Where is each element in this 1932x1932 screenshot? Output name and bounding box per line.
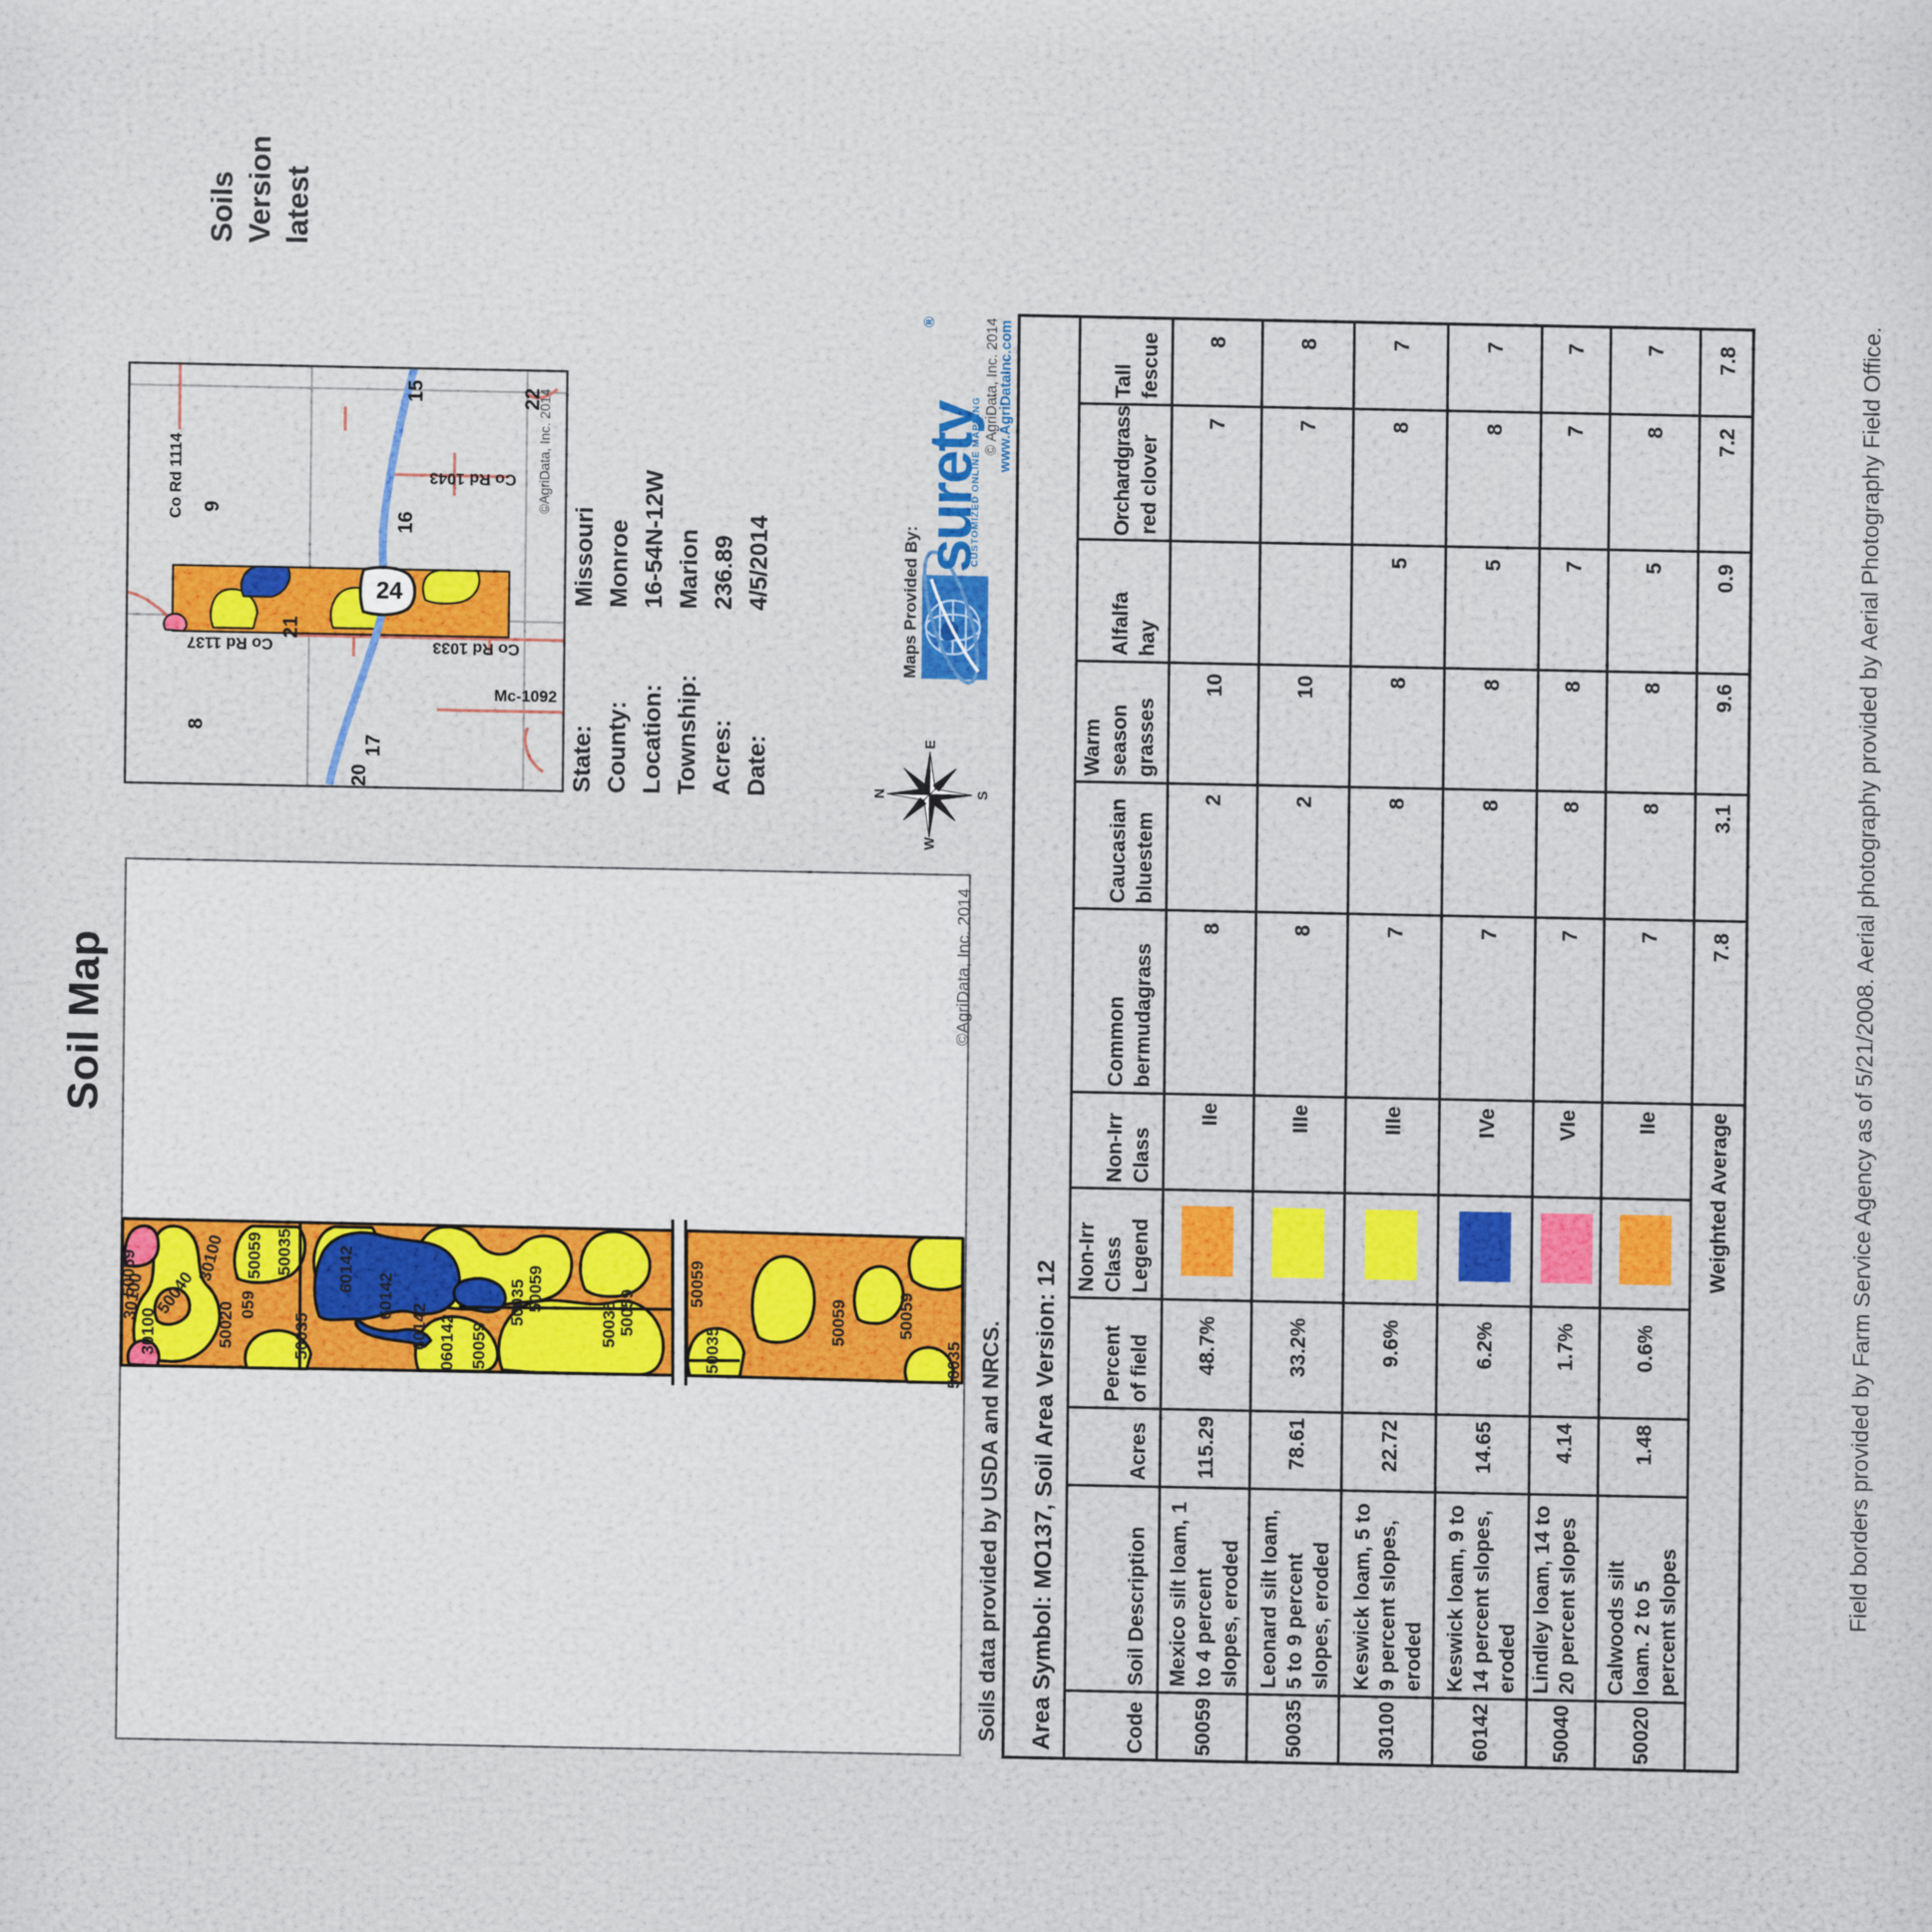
svg-text:8: 8 xyxy=(1641,802,1664,814)
svg-text:60142: 60142 xyxy=(1469,1703,1493,1762)
svg-text:22.72: 22.72 xyxy=(1378,1419,1402,1472)
svg-text:3.1: 3.1 xyxy=(1712,804,1735,834)
svg-text:of field: of field xyxy=(1128,1333,1152,1402)
svg-text:48.7%: 48.7% xyxy=(1196,1315,1219,1375)
svg-text:bermudagrass: bermudagrass xyxy=(1132,943,1157,1088)
svg-text:7: 7 xyxy=(1564,561,1587,573)
svg-text:hay: hay xyxy=(1137,620,1160,657)
svg-text:17: 17 xyxy=(362,734,384,757)
svg-text:10: 10 xyxy=(1294,676,1317,700)
svg-text:to 4 percent: to 4 percent xyxy=(1193,1569,1216,1688)
svg-text:060142: 060142 xyxy=(437,1314,457,1371)
svg-text:7: 7 xyxy=(1391,340,1414,352)
svg-text:10: 10 xyxy=(1204,674,1226,698)
svg-text:8: 8 xyxy=(1390,421,1413,433)
svg-text:8: 8 xyxy=(1481,679,1504,691)
svg-text:9.6%: 9.6% xyxy=(1380,1319,1404,1368)
svg-text:5: 5 xyxy=(1389,557,1412,569)
svg-text:slopes, eroded: slopes, eroded xyxy=(1218,1540,1243,1689)
svg-text:season: season xyxy=(1108,704,1132,776)
svg-text:Co Rd 1043: Co Rd 1043 xyxy=(429,469,516,488)
svg-text:8: 8 xyxy=(1484,423,1507,435)
svg-text:7: 7 xyxy=(1559,930,1582,942)
svg-text:Class: Class xyxy=(1102,1236,1126,1292)
svg-text:5 to 9 percent: 5 to 9 percent xyxy=(1283,1553,1308,1690)
svg-text:50035: 50035 xyxy=(703,1326,723,1374)
svg-text:Soil Description: Soil Description xyxy=(1125,1526,1150,1686)
svg-text:50020: 50020 xyxy=(1630,1706,1654,1765)
svg-text:Co Rd 1137: Co Rd 1137 xyxy=(187,633,273,652)
svg-text:©AgriData, Inc. 2014: ©AgriData, Inc. 2014 xyxy=(537,388,553,514)
svg-text:Tall: Tall xyxy=(1112,363,1135,398)
svg-text:8: 8 xyxy=(1561,801,1584,813)
svg-text:7: 7 xyxy=(1478,928,1501,940)
svg-text:4.14: 4.14 xyxy=(1553,1423,1576,1465)
svg-text:21: 21 xyxy=(280,616,302,639)
svg-text:9 percent slopes,: 9 percent slopes, xyxy=(1376,1520,1401,1691)
svg-text:Keswick loam, 9 to: Keswick loam, 9 to xyxy=(1444,1505,1469,1692)
svg-text:7.2: 7.2 xyxy=(1716,428,1739,458)
svg-text:7: 7 xyxy=(1566,343,1589,355)
svg-text:059: 059 xyxy=(239,1290,257,1319)
svg-text:115.29: 115.29 xyxy=(1195,1416,1218,1480)
svg-text:50059: 50059 xyxy=(244,1231,264,1279)
svg-text:2: 2 xyxy=(1293,796,1316,808)
svg-text:IIIe: IIIe xyxy=(1382,1106,1405,1136)
svg-text:60142: 60142 xyxy=(376,1272,396,1320)
svg-text:0.9: 0.9 xyxy=(1714,564,1737,594)
svg-text:30100: 30100 xyxy=(1375,1701,1399,1760)
svg-text:6.2%: 6.2% xyxy=(1473,1321,1497,1370)
svg-text:eroded: eroded xyxy=(1496,1624,1520,1693)
svg-text:E: E xyxy=(922,739,938,749)
svg-text:33.2%: 33.2% xyxy=(1286,1317,1310,1377)
svg-text:14 percent slopes,: 14 percent slopes, xyxy=(1470,1510,1495,1693)
svg-text:50059: 50059 xyxy=(829,1299,849,1347)
svg-text:7: 7 xyxy=(1639,932,1662,944)
svg-text:8: 8 xyxy=(1387,677,1410,689)
svg-text:Code: Code xyxy=(1124,1701,1148,1754)
svg-text:N: N xyxy=(871,788,887,798)
svg-text:1.48: 1.48 xyxy=(1633,1424,1656,1466)
svg-text:50059: 50059 xyxy=(618,1289,638,1337)
svg-text:50035: 50035 xyxy=(944,1341,964,1389)
svg-text:20: 20 xyxy=(348,763,370,786)
svg-text:Legend: Legend xyxy=(1129,1218,1153,1293)
svg-text:50020: 50020 xyxy=(217,1301,237,1349)
svg-text:Area Symbol: MO137, Soil Area: Area Symbol: MO137, Soil Area Version: 1… xyxy=(1028,1259,1061,1750)
svg-text:14.65: 14.65 xyxy=(1472,1421,1496,1474)
svg-text:50059: 50059 xyxy=(897,1292,917,1340)
svg-text:9.6: 9.6 xyxy=(1713,684,1736,714)
svg-text:7: 7 xyxy=(1485,341,1508,353)
svg-text:2: 2 xyxy=(1203,794,1225,806)
svg-text:8: 8 xyxy=(186,718,208,729)
svg-text:8: 8 xyxy=(1480,799,1503,811)
svg-text:Mexico silt loam, 1: Mexico silt loam, 1 xyxy=(1167,1501,1192,1687)
svg-text:50035: 50035 xyxy=(600,1300,620,1348)
svg-text:Orchardgrass: Orchardgrass xyxy=(1111,405,1135,536)
svg-text:7.8: 7.8 xyxy=(1717,346,1740,376)
svg-text:Keswick loam, 5 to: Keswick loam, 5 to xyxy=(1350,1503,1375,1690)
svg-text:Co Rd 1033: Co Rd 1033 xyxy=(432,639,519,658)
svg-text:IIe: IIe xyxy=(1199,1103,1221,1127)
svg-text:VIe: VIe xyxy=(1557,1110,1580,1142)
svg-text:slopes, eroded: slopes, eroded xyxy=(1309,1542,1334,1690)
svg-text:8: 8 xyxy=(1386,797,1409,809)
svg-text:7: 7 xyxy=(1384,926,1407,938)
svg-text:30100: 30100 xyxy=(138,1307,158,1355)
svg-text:8: 8 xyxy=(1645,426,1668,438)
svg-text:Calwoods silt: Calwoods silt xyxy=(1605,1561,1630,1696)
svg-text:24: 24 xyxy=(376,578,404,606)
svg-text:Caucasian: Caucasian xyxy=(1107,798,1131,904)
svg-text:Co Rd 1114: Co Rd 1114 xyxy=(168,432,186,518)
svg-text:20 percent slopes: 20 percent slopes xyxy=(1556,1518,1581,1695)
svg-text:8: 8 xyxy=(1291,924,1314,936)
svg-text:Mc-1092: Mc-1092 xyxy=(494,688,557,706)
svg-text:8: 8 xyxy=(1642,682,1665,694)
svg-text:7: 7 xyxy=(1565,425,1588,437)
svg-text:Alfalfa: Alfalfa xyxy=(1110,591,1134,656)
svg-text:7.8: 7.8 xyxy=(1710,933,1733,963)
svg-text:Lindley loam, 14 to: Lindley loam, 14 to xyxy=(1530,1505,1555,1693)
svg-text:Percent: Percent xyxy=(1101,1325,1125,1402)
svg-text:Common: Common xyxy=(1105,996,1129,1087)
svg-text:60142: 60142 xyxy=(336,1245,356,1293)
svg-text:50035: 50035 xyxy=(274,1228,294,1276)
svg-text:IIIe: IIIe xyxy=(1289,1105,1312,1135)
svg-text:50059: 50059 xyxy=(526,1265,546,1313)
svg-text:50035: 50035 xyxy=(1282,1699,1306,1758)
svg-text:eroded: eroded xyxy=(1402,1622,1426,1691)
svg-text:S: S xyxy=(974,791,990,801)
svg-text:Class: Class xyxy=(1131,1127,1155,1183)
svg-text:50059: 50059 xyxy=(688,1260,708,1308)
svg-text:50040: 50040 xyxy=(1550,1704,1574,1763)
svg-text:7: 7 xyxy=(1207,418,1229,430)
svg-text:IVe: IVe xyxy=(1476,1108,1499,1139)
svg-text:5: 5 xyxy=(1483,559,1506,571)
svg-text:50035: 50035 xyxy=(291,1312,311,1360)
svg-text:50059: 50059 xyxy=(1192,1697,1215,1756)
svg-text:8: 8 xyxy=(1562,681,1585,693)
svg-text:bluestem: bluestem xyxy=(1134,811,1158,904)
svg-text:Non-Irr: Non-Irr xyxy=(1104,1113,1128,1183)
svg-text:red clover: red clover xyxy=(1138,434,1162,535)
svg-text:Warm: Warm xyxy=(1081,719,1105,776)
svg-text:percent slopes: percent slopes xyxy=(1657,1549,1682,1697)
svg-text:W: W xyxy=(921,836,937,850)
svg-text:Non-Irr: Non-Irr xyxy=(1075,1221,1099,1291)
svg-text:50035: 50035 xyxy=(508,1279,528,1327)
svg-text:5: 5 xyxy=(1644,562,1667,574)
svg-text:grasses: grasses xyxy=(1135,698,1159,777)
svg-text:16: 16 xyxy=(395,511,417,534)
svg-text:8: 8 xyxy=(1207,336,1230,348)
svg-text:Leonard silt loam,: Leonard silt loam, xyxy=(1257,1509,1282,1689)
svg-text:50059: 50059 xyxy=(469,1322,489,1370)
svg-text:15: 15 xyxy=(405,379,427,402)
svg-text:60142: 60142 xyxy=(410,1303,430,1351)
svg-text:fescue: fescue xyxy=(1139,332,1163,399)
svg-text:8: 8 xyxy=(1298,337,1321,349)
svg-text:IIe: IIe xyxy=(1637,1112,1660,1136)
svg-text:loam. 2 to 5: loam. 2 to 5 xyxy=(1631,1581,1655,1696)
svg-text:9: 9 xyxy=(202,500,224,512)
svg-text:0.6%: 0.6% xyxy=(1634,1324,1658,1373)
svg-text:78.61: 78.61 xyxy=(1285,1417,1309,1470)
svg-text:1.7%: 1.7% xyxy=(1554,1323,1578,1372)
svg-text:7: 7 xyxy=(1297,420,1320,432)
svg-text:8: 8 xyxy=(1201,922,1223,934)
svg-text:7: 7 xyxy=(1646,345,1669,357)
svg-text:Weighted Average: Weighted Average xyxy=(1706,1113,1731,1294)
svg-text:Acres: Acres xyxy=(1127,1422,1151,1481)
